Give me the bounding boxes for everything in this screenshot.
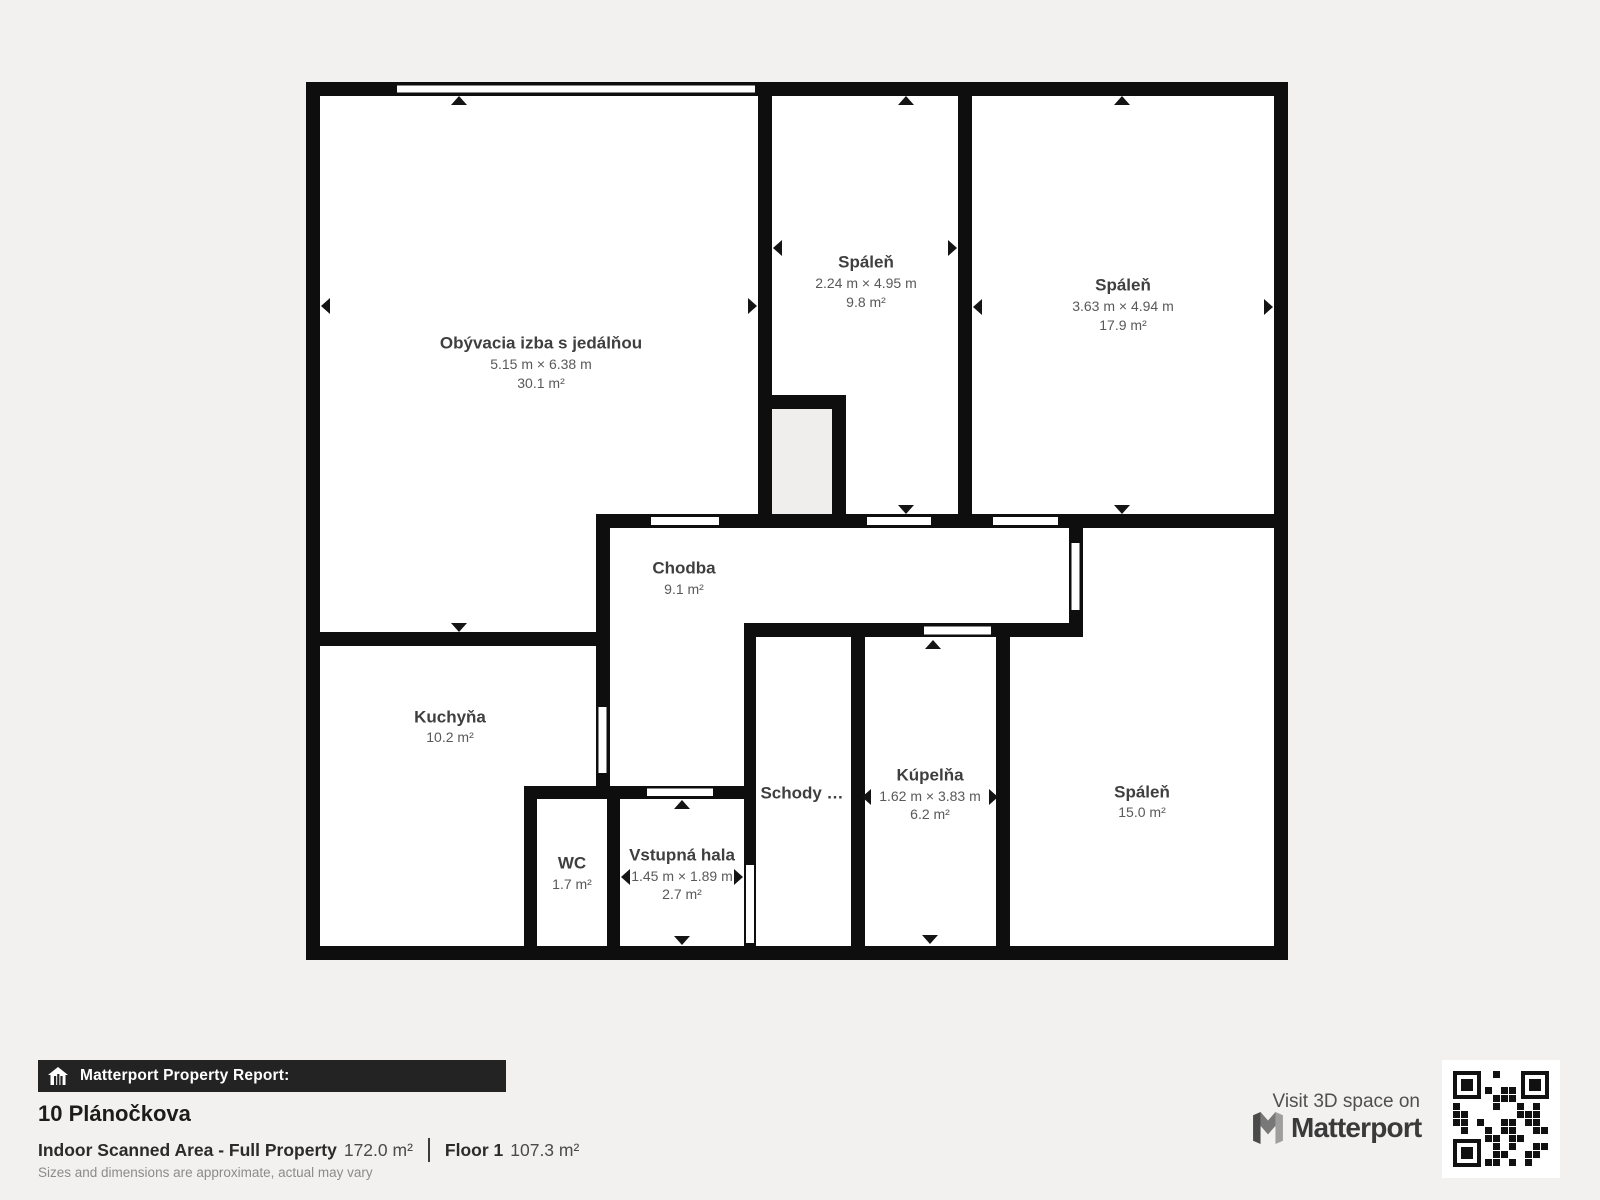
- room-label-bedroom-right-area: 17.9 m²: [1099, 317, 1147, 333]
- room-label-living-name: Obývacia izba s jedálňou: [440, 334, 642, 353]
- floor-label: Floor 1: [445, 1140, 503, 1161]
- room-label-bedroom15-area: 15.0 m²: [1118, 804, 1166, 820]
- room-label-hala-area: 2.7 m²: [662, 886, 702, 902]
- room-label-kuchyna-name: Kuchyňa: [414, 708, 486, 727]
- matterport-wordmark: Matterport: [1291, 1112, 1421, 1144]
- room-label-bedroom-mid-dims: 2.24 m × 4.95 m: [815, 275, 917, 291]
- room-label-hala-name: Vstupná hala: [629, 846, 735, 865]
- property-report-page: Obývacia izba s jedálňou 5.15 m × 6.38 m…: [0, 0, 1600, 1200]
- room-label-schody-name: Schody …: [760, 784, 843, 803]
- closet-area: [772, 409, 832, 514]
- room-label-wc-name: WC: [558, 854, 586, 873]
- room-label-chodba-name: Chodba: [652, 559, 716, 578]
- floor-value: 107.3 m²: [510, 1140, 579, 1161]
- room-label-kuchyna-area: 10.2 m²: [426, 729, 474, 745]
- visit-3d-label: Visit 3D space on: [1232, 1091, 1420, 1113]
- indoor-area-value: 172.0 m²: [344, 1140, 413, 1161]
- room-label-kupelna-dims: 1.62 m × 3.83 m: [879, 788, 981, 804]
- room-label-living-area: 30.1 m²: [517, 375, 565, 391]
- room-label-kupelna-area: 6.2 m²: [910, 806, 950, 822]
- matterport-report-bar: Matterport Property Report:: [38, 1060, 506, 1092]
- disclaimer-text: Sizes and dimensions are approximate, ac…: [38, 1165, 373, 1180]
- report-bar-label: Matterport Property Report:: [80, 1067, 290, 1085]
- room-label-bedroom-right-name: Spáleň: [1095, 276, 1151, 295]
- room-label-bedroom-mid-area: 9.8 m²: [846, 294, 886, 310]
- scanned-area-stats: Indoor Scanned Area - Full Property 172.…: [38, 1138, 579, 1162]
- house-icon: [48, 1067, 68, 1085]
- matterport-m-icon: [1253, 1112, 1283, 1144]
- indoor-area-label: Indoor Scanned Area - Full Property: [38, 1140, 337, 1161]
- room-label-wc-area: 1.7 m²: [552, 876, 592, 892]
- room-label-living-dims: 5.15 m × 6.38 m: [490, 356, 592, 372]
- room-label-bedroom15-name: Spáleň: [1114, 783, 1170, 802]
- room-label-bedroom-mid-name: Spáleň: [838, 253, 894, 272]
- property-address: 10 Plánočkova: [38, 1101, 191, 1127]
- room-label-chodba-area: 9.1 m²: [664, 581, 704, 597]
- stats-divider: [428, 1138, 430, 1162]
- floor-plan: Obývacia izba s jedálňou 5.15 m × 6.38 m…: [0, 0, 1600, 1200]
- room-label-kupelna-name: Kúpelňa: [896, 766, 964, 785]
- qr-code: [1442, 1060, 1560, 1178]
- room-label-hala-dims: 1.45 m × 1.89 m: [631, 868, 733, 884]
- room-label-bedroom-right-dims: 3.63 m × 4.94 m: [1072, 298, 1174, 314]
- matterport-brand: Matterport: [1253, 1112, 1421, 1144]
